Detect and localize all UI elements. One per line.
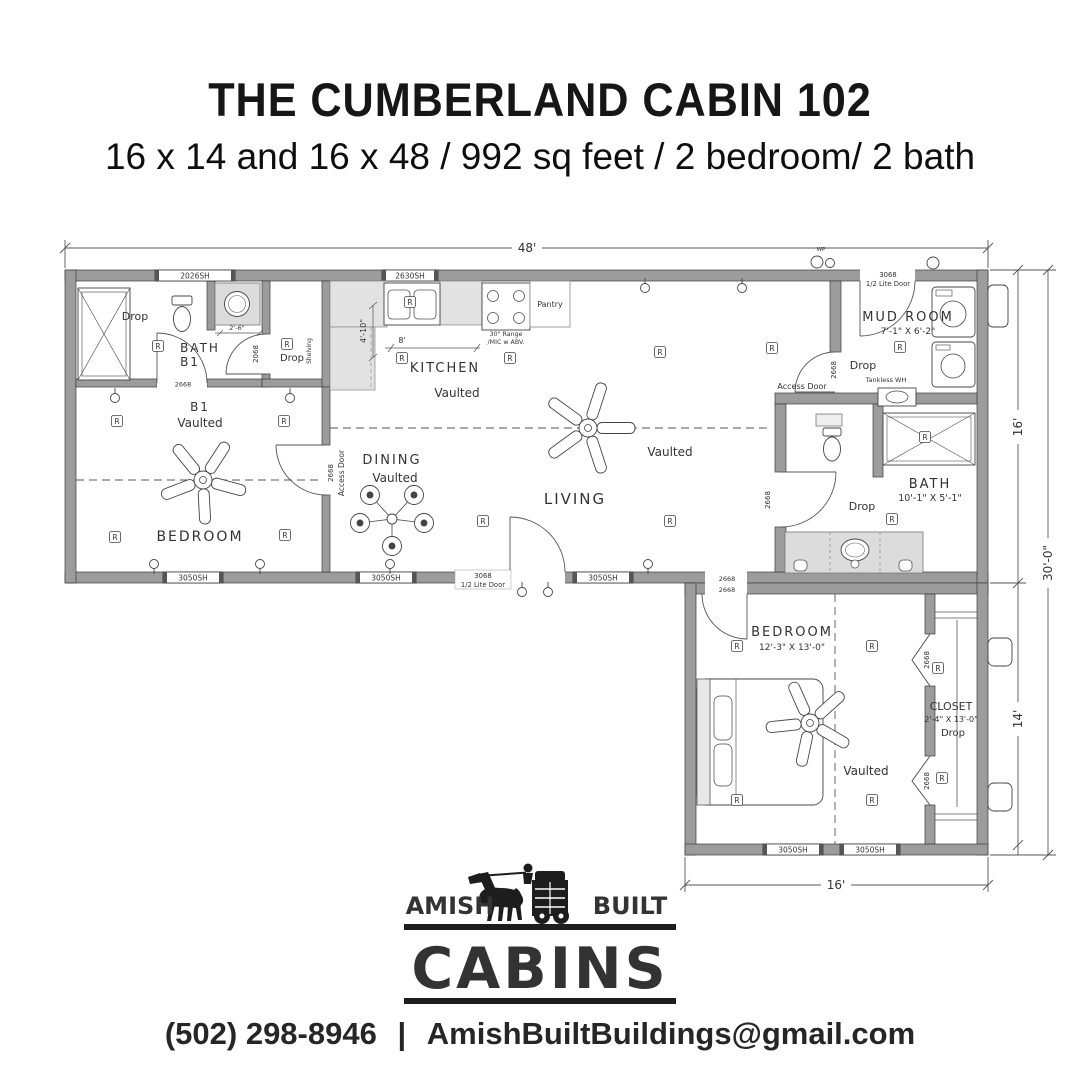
- receptacle-symbol: R: [397, 353, 408, 364]
- receptacle-symbol: R: [280, 530, 291, 541]
- drop-label: Drop: [850, 359, 876, 372]
- bedroom-door: [702, 594, 747, 639]
- receptacle-symbol: R: [282, 339, 293, 350]
- receptacle-symbol: R: [937, 773, 948, 784]
- receptacle-symbol: R: [933, 663, 944, 674]
- receptacle-symbol: R: [665, 516, 676, 527]
- receptacle-symbol: R: [867, 641, 878, 652]
- window-label: 3050SH: [371, 574, 401, 583]
- room-bedroom-dims: 12'-3" X 13'-0": [759, 643, 825, 653]
- drop-label: Drop: [280, 353, 304, 364]
- room-bedroom-b1-sub: B1: [190, 400, 210, 414]
- door-size: 2668: [719, 586, 736, 594]
- toilet-b1: [172, 296, 192, 332]
- dim-depth-lower: 14': [1011, 710, 1025, 729]
- bedroom-b1-door: [276, 445, 326, 495]
- receptacle-label: R: [922, 433, 927, 442]
- window-label: 3050SH: [178, 574, 208, 583]
- receptacle-label: R: [399, 354, 404, 363]
- room-bath: BATH: [909, 477, 952, 492]
- receptacle-label: R: [657, 348, 662, 357]
- room-living: LIVING: [544, 490, 606, 508]
- receptacle-symbol: R: [112, 416, 123, 427]
- receptacle-label: R: [939, 774, 944, 783]
- receptacle-label: R: [114, 417, 119, 426]
- page-title: THE CUMBERLAND CABIN 102: [43, 72, 1037, 127]
- room-mudroom-dims: 7'-1" X 6'-2": [881, 327, 936, 337]
- door-size: 3068: [879, 271, 896, 279]
- page: THE CUMBERLAND CABIN 102 16 x 14 and 16 …: [0, 0, 1080, 1080]
- vaulted-label: Vaulted: [372, 471, 417, 485]
- page-subtitle: 16 x 14 and 16 x 48 / 992 sq feet / 2 be…: [0, 136, 1080, 178]
- receptacle-label: R: [282, 531, 287, 540]
- front-entry-door: [510, 517, 565, 572]
- vaulted-label: Vaulted: [647, 445, 692, 459]
- shelving-label: Shelving: [306, 338, 313, 364]
- kitchen-dim-run: 8': [398, 336, 405, 345]
- room-bath-dims: 10'-1" X 5'-1": [898, 493, 962, 504]
- separator: |: [391, 1016, 412, 1051]
- receptacle-symbol: R: [767, 343, 778, 354]
- receptacle-symbol: R: [732, 795, 743, 806]
- door-size: 2668: [175, 381, 192, 389]
- dim-depth-main: 16': [1011, 418, 1025, 437]
- receptacle-label: R: [281, 417, 286, 426]
- room-closet: CLOSET: [930, 700, 973, 713]
- ceiling-fan-icon: [160, 440, 247, 524]
- receptacle-label: R: [935, 664, 940, 673]
- shower-b1: [78, 288, 130, 380]
- access-door-label: Access Door: [777, 382, 827, 391]
- receptacle-symbol: R: [478, 516, 489, 527]
- pantry-label: Pantry: [537, 300, 563, 309]
- window-label: 2630SH: [395, 272, 425, 281]
- toilet-bowl: [824, 437, 841, 461]
- receptacle-label: R: [480, 517, 485, 526]
- door-size: 2668: [764, 491, 772, 509]
- door-size: 3068: [474, 572, 491, 580]
- ceiling-fan-icon: [547, 382, 635, 475]
- drop-label: Drop: [849, 500, 875, 513]
- bath-door: [781, 472, 836, 527]
- vaulted-label: Vaulted: [434, 386, 479, 400]
- phone-number: (502) 298-8946: [159, 1016, 383, 1051]
- receptacle-label: R: [507, 354, 512, 363]
- range: [482, 283, 530, 330]
- brand-logo: AMISH BUILT CABINS: [404, 858, 676, 1011]
- wall-light-icon: [518, 582, 527, 597]
- dining-table: [351, 486, 434, 556]
- receptacle-label: R: [155, 342, 160, 351]
- contact-line: (502) 298-8946 | AmishBuiltBuildings@gma…: [0, 1016, 1080, 1052]
- wall-light-icon: [286, 388, 295, 403]
- dim-depth-total: 30'-0": [1041, 545, 1055, 581]
- logo-bar-bottom: [404, 998, 676, 1004]
- receptacle-symbol: R: [732, 641, 743, 652]
- receptacle-symbol: R: [279, 416, 290, 427]
- logo-amish: AMISH: [406, 892, 495, 920]
- dim-width-main: 48': [518, 241, 537, 255]
- receptacle-symbol: R: [895, 342, 906, 353]
- wall-light-icon: [544, 582, 553, 597]
- room-dining: DINING: [362, 453, 421, 468]
- receptacle-label: R: [112, 533, 117, 542]
- door-size: 2668: [830, 361, 838, 379]
- receptacle-label: R: [869, 642, 874, 651]
- room-bedroom: BEDROOM: [751, 625, 833, 640]
- room-bath-b1: BATH: [180, 341, 220, 355]
- washer-dryer: [878, 287, 975, 406]
- door-type: 1/2 Lite Door: [866, 280, 910, 288]
- floor-plan: 48' 16' 30'-0" 14' 16': [30, 230, 1060, 900]
- receptacle-label: R: [667, 517, 672, 526]
- receptacle-symbol: R: [110, 532, 121, 543]
- door-size: 2668: [923, 651, 931, 669]
- kitchen-dim-depth: 4'-10": [359, 319, 368, 343]
- drop-label: Drop: [122, 310, 148, 323]
- door-size: 2668: [923, 772, 931, 790]
- floor-plan-svg: 48' 16' 30'-0" 14' 16': [30, 230, 1060, 900]
- range-label-2: /MIC w ABV.: [488, 339, 525, 346]
- vanity-b1-dim: 2'-6": [229, 324, 244, 332]
- door-type: 1/2 Lite Door: [461, 581, 505, 589]
- receptacle-label: R: [734, 796, 739, 805]
- receptacle-label: R: [407, 298, 412, 307]
- receptacle-label: R: [869, 796, 874, 805]
- door-size: 2668: [327, 464, 335, 482]
- receptacle-label: R: [897, 343, 902, 352]
- receptacle-symbol: R: [505, 353, 516, 364]
- receptacle-symbol: R: [405, 297, 416, 308]
- logo-built: BUILT: [593, 892, 668, 920]
- wall-light-icon: [111, 388, 120, 403]
- receptacle-symbol: R: [655, 347, 666, 358]
- room-kitchen: KITCHEN: [410, 361, 480, 376]
- receptacle-label: R: [889, 515, 894, 524]
- receptacle-symbol: R: [153, 341, 164, 352]
- window-label: 2026SH: [180, 272, 210, 281]
- receptacle-symbol: R: [867, 795, 878, 806]
- tankless-label: Tankless WH: [865, 376, 907, 384]
- email-address: AmishBuiltBuildings@gmail.com: [421, 1016, 921, 1051]
- door-size: 2668: [719, 575, 736, 583]
- closet-b1-door: [226, 334, 266, 374]
- dim-width-lower: 16': [827, 878, 846, 892]
- receptacle-symbol: R: [920, 432, 931, 443]
- door-size: 2068: [252, 345, 260, 363]
- receptacle-label: R: [734, 642, 739, 651]
- toilet-tank: [823, 428, 841, 436]
- wp-label: WP: [817, 247, 826, 253]
- receptacle-label: R: [284, 340, 289, 349]
- vaulted-label: Vaulted: [177, 416, 222, 430]
- window-label: 3050SH: [588, 574, 618, 583]
- room-bath-b1-sub: B1: [180, 355, 200, 369]
- window-label: 3050SH: [855, 846, 885, 855]
- logo-cabins: CABINS: [411, 936, 668, 1002]
- window-label: 3050SH: [778, 846, 808, 855]
- receptacle-symbol: R: [887, 514, 898, 525]
- vaulted-label: Vaulted: [843, 764, 888, 778]
- range-label-1: 30" Range: [490, 331, 523, 338]
- drop-label: Drop: [941, 728, 965, 739]
- logo-svg: AMISH BUILT CABINS: [404, 858, 676, 1006]
- logo-bar-top: [404, 924, 676, 930]
- room-mudroom: MUD ROOM: [862, 310, 954, 325]
- access-door-label: Access Door: [337, 449, 346, 496]
- room-closet-dims: 2'-4" X 13'-0": [924, 715, 978, 724]
- receptacle-label: R: [769, 344, 774, 353]
- room-bedroom-b1: BEDROOM: [156, 529, 243, 545]
